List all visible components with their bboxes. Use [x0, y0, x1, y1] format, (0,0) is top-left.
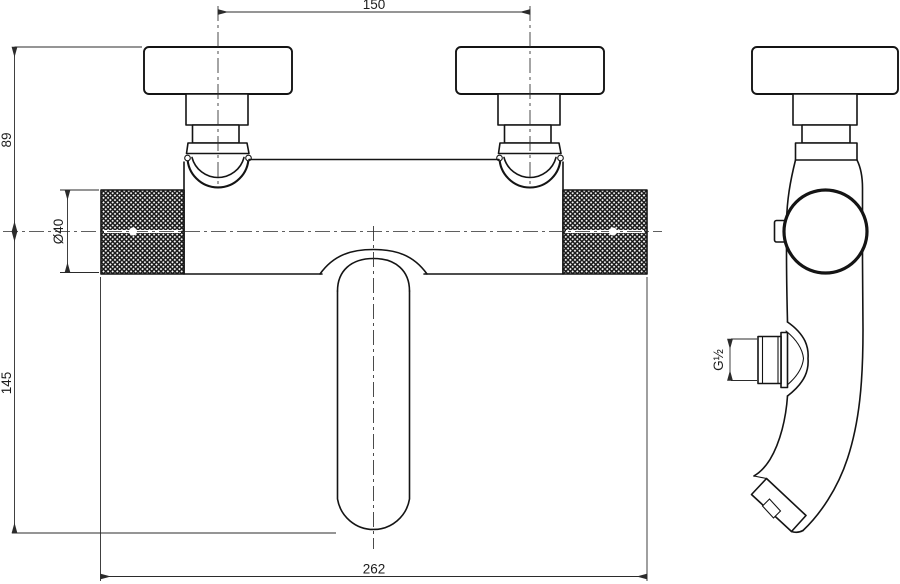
faucet-dimension-drawing: 150 89 Ø40 145 262	[0, 0, 900, 584]
side-spout-lower-left-edge	[754, 396, 788, 476]
side-stem	[793, 94, 857, 125]
technical-drawing-canvas: 150 89 Ø40 145 262	[0, 0, 900, 584]
outlet-trumpet-cover	[788, 322, 809, 396]
dimensions: 150 89 Ø40 145 262	[0, 0, 757, 581]
left-neck	[193, 125, 240, 143]
side-spout-tip	[752, 396, 807, 532]
side-neck	[802, 125, 850, 143]
right-neck	[505, 125, 552, 143]
dim-mount-spacing: 150	[218, 0, 530, 12]
right-knurl-center-dot	[609, 228, 617, 236]
left-stem	[186, 94, 248, 125]
dim-label-89: 89	[0, 132, 14, 147]
tip-notch	[754, 476, 767, 479]
dim-center-to-spout: 145	[0, 232, 336, 534]
dim-label-g12: G½	[711, 349, 726, 371]
right-union-curl-right	[558, 155, 564, 161]
front-view	[101, 47, 647, 529]
side-collar	[796, 143, 858, 160]
left-union-curl-left	[185, 155, 191, 161]
mixer-body	[101, 160, 647, 275]
left-knurl-center-dot	[129, 228, 137, 236]
side-knurled-cap-circle	[784, 190, 867, 273]
side-escutcheon	[752, 47, 898, 94]
aerator-band	[752, 479, 807, 532]
shower-outlet	[758, 322, 808, 396]
dim-label-262: 262	[363, 562, 386, 577]
side-view	[752, 47, 899, 532]
dim-label-145: 145	[0, 372, 14, 395]
dim-label-d40: Ø40	[51, 219, 66, 245]
dim-shower-thread: G½	[711, 339, 757, 381]
nipple-flange	[781, 333, 788, 388]
right-stem	[498, 94, 560, 125]
dim-label-150: 150	[363, 0, 386, 12]
